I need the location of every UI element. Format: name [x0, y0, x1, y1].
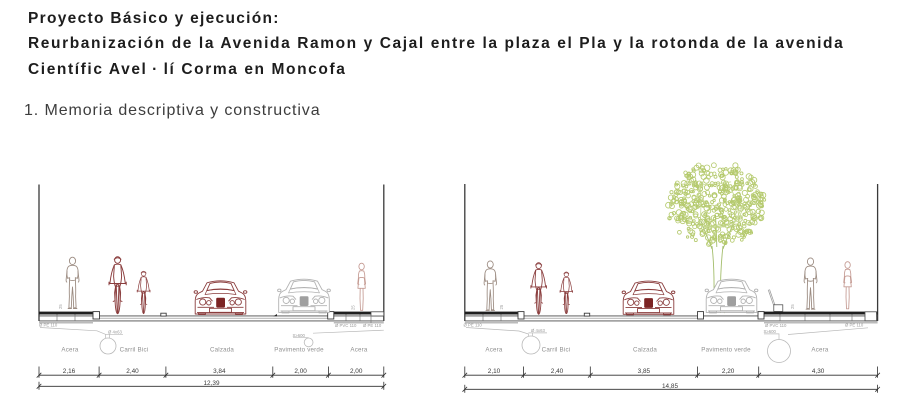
svg-text:S≥600: S≥600 [293, 333, 306, 338]
svg-text:Pavimento verde: Pavimento verde [274, 347, 324, 354]
svg-text:Acera: Acera [61, 347, 79, 354]
svg-text:3,85: 3,85 [638, 368, 651, 375]
svg-text:2,40: 2,40 [551, 368, 564, 375]
svg-text:Calzada: Calzada [210, 347, 234, 354]
svg-text:Ø PE 110: Ø PE 110 [39, 322, 58, 327]
svg-text:12,39: 12,39 [204, 380, 220, 387]
svg-text:Pavimento verde: Pavimento verde [701, 347, 751, 354]
svg-text:Ø PE 110: Ø PE 110 [464, 322, 483, 327]
svg-text:25: 25 [58, 304, 63, 309]
svg-text:3,84: 3,84 [213, 368, 226, 375]
svg-text:Acera: Acera [485, 347, 503, 354]
svg-text:Ø PVC 110: Ø PVC 110 [765, 323, 787, 328]
svg-text:Calzada: Calzada [633, 347, 657, 354]
svg-text:Ø PE 110: Ø PE 110 [363, 323, 382, 328]
svg-text:25: 25 [790, 304, 795, 309]
svg-text:2,00: 2,00 [294, 368, 307, 375]
svg-text:Acera: Acera [811, 347, 829, 354]
svg-text:2,00: 2,00 [350, 368, 363, 375]
svg-text:Ø 4x63: Ø 4x63 [108, 329, 122, 334]
svg-text:25: 25 [499, 304, 504, 309]
svg-text:2,16: 2,16 [63, 368, 76, 375]
svg-text:Carril Bici: Carril Bici [120, 347, 149, 354]
svg-text:2,10: 2,10 [488, 368, 501, 375]
svg-text:Ø 4x63: Ø 4x63 [531, 328, 545, 333]
svg-text:Ø PVC 110: Ø PVC 110 [335, 323, 357, 328]
svg-text:2,40: 2,40 [126, 368, 139, 375]
svg-text:2,20: 2,20 [722, 368, 735, 375]
svg-text:14,85: 14,85 [662, 383, 678, 390]
svg-text:Ø PE 110: Ø PE 110 [845, 322, 864, 327]
svg-text:4,30: 4,30 [812, 368, 825, 375]
svg-text:Acera: Acera [350, 347, 368, 354]
svg-text:25: 25 [351, 305, 356, 310]
svg-text:Carril Bici: Carril Bici [542, 347, 571, 354]
svg-text:S≥600: S≥600 [764, 329, 777, 334]
